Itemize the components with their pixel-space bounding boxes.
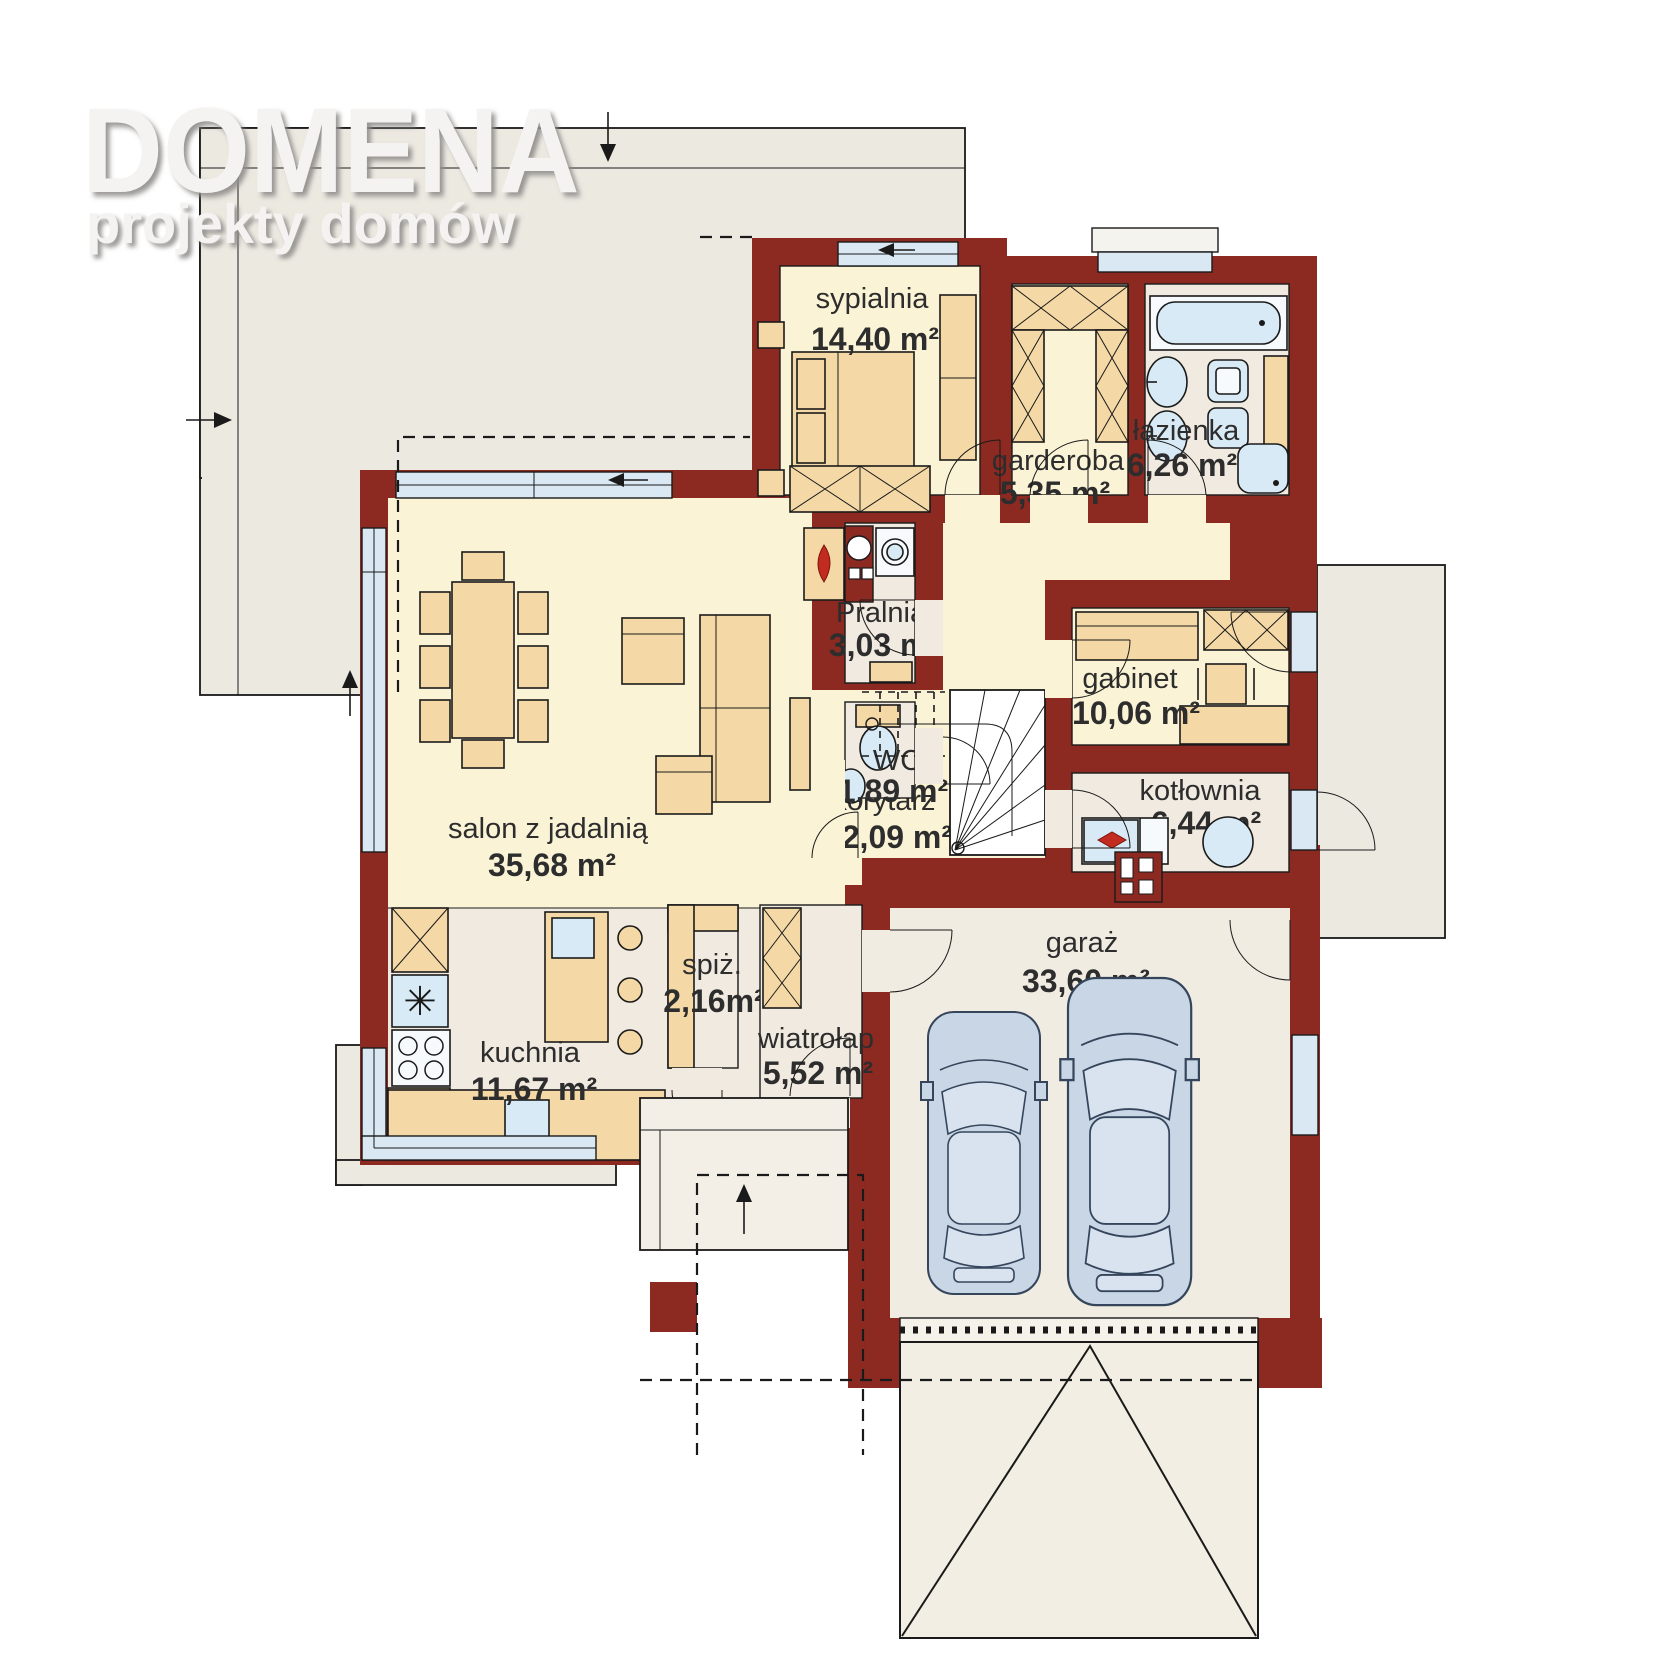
kotlownia-label: kotłownia [1140,775,1262,807]
kitchen-closet [392,908,448,972]
sypialnia-window [838,242,958,266]
daybed [1076,612,1198,660]
fireplace-icon [804,528,844,600]
gabinet-label: gabinet [1082,663,1177,695]
room-garaz: garaż 33,60 m² [890,908,1290,1342]
salon-area: 35,68 m² [488,847,616,883]
sypialnia-area: 14,40 m² [811,321,939,357]
room-lazienka: łazienka 6,26 m² [1127,284,1289,495]
room-salon: salon z jadalnią 35,68 m² [388,498,845,908]
stove [392,1030,450,1086]
sypialnia-label: sypialnia [816,283,930,315]
salon-terrace-sliding-door [396,472,672,498]
room-kotlownia: kotłownia 6,44 m² [1072,773,1289,872]
coffee-table [656,756,712,814]
room-gabinet: gabinet 10,06 m² [1072,608,1289,745]
floor-plan-drawing: salon z jadalnią 35,68 m² sypialnia 14,4… [0,0,1680,1680]
wiatrolap-area: 5,52 m² [763,1055,873,1091]
nightstand [758,470,784,496]
gabinet-area: 10,06 m² [1072,695,1200,731]
bathroom-window [1092,228,1218,272]
wiatrolap-label: wiatrołap [757,1023,874,1055]
pralnia-label: Pralnia [836,597,927,629]
laundry-counter [845,526,873,602]
garage-door [900,1318,1258,1342]
car [921,1012,1047,1294]
bed [792,352,914,468]
garage-window [1292,1035,1318,1135]
salon-west-window [362,528,386,852]
room-wiatrolap: wiatrołap 5,52 m² [757,905,874,1098]
tall-cabinet [940,295,976,460]
tv-cabinet [790,698,810,790]
driveway-roof [900,1342,1258,1638]
bar-stool [618,1030,642,1054]
shower [1238,444,1288,493]
car [1060,978,1199,1305]
bar-stool [618,926,642,950]
room-sypialnia: sypialnia 14,40 m² [758,266,980,512]
spiz-area: 2,16m² [663,983,764,1019]
armchair [622,618,684,684]
kotlownia-terrace-door [1291,790,1317,850]
logo: DOMENA projekty domów [82,82,580,255]
bathtub [1150,296,1287,350]
washing-machine [876,528,914,576]
salon-label: salon z jadalnią [448,813,649,845]
chimney [1115,852,1162,902]
room-garderoba: garderoba 5,35 m² [992,284,1128,511]
desk-chair [1198,664,1254,704]
lazienka-label: łazienka [1133,415,1240,447]
gabinet-terrace-door [1291,612,1317,672]
kuchnia-label: kuchnia [480,1037,581,1069]
wardrobe-closet [790,466,930,512]
garaz-label: garaż [1046,927,1119,959]
bar-stool [618,978,642,1002]
nightstand [758,322,784,348]
floor-plan-page: salon z jadalnią 35,68 m² sypialnia 14,4… [0,0,1680,1680]
garderoba-label: garderoba [992,445,1125,477]
water-tank [1203,817,1253,867]
entry-closet [763,908,801,1008]
laundry-sink [870,662,912,682]
office-closet [1204,610,1288,650]
logo-subtitle: projekty domów [86,192,516,255]
svg-text:✳: ✳ [403,980,437,1024]
lazienka-area: 6,26 m² [1127,447,1237,483]
terrace-right [1317,565,1445,938]
fridge: ✳ [392,975,448,1027]
bath-cabinet [1264,356,1288,452]
kuchnia-area: 11,67 m² [471,1071,597,1107]
spiz-label: spiż. [682,949,742,981]
kitchen-island [545,912,642,1054]
island-sink [552,918,594,958]
toilet [1208,360,1248,402]
